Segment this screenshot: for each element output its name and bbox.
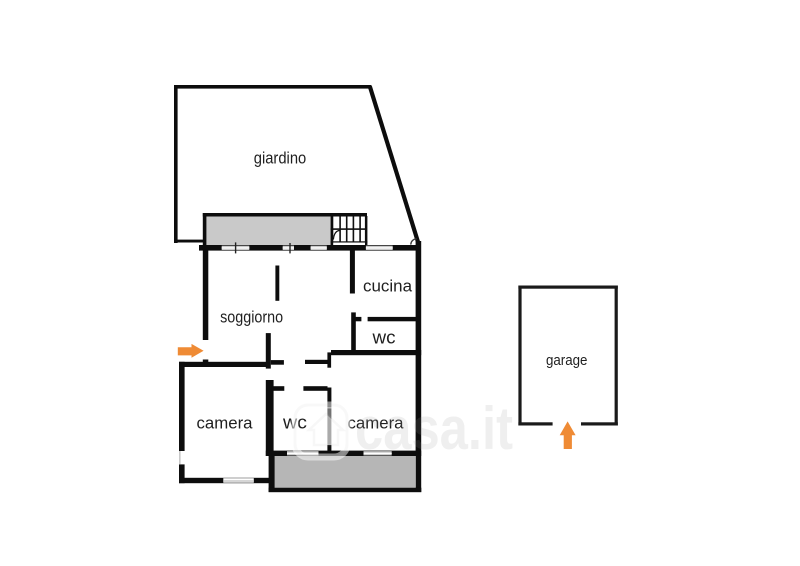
svg-text:casa.it: casa.it <box>355 395 513 462</box>
svg-text:giardino: giardino <box>254 149 307 168</box>
svg-text:soggiorno: soggiorno <box>220 308 283 327</box>
svg-text:cucina: cucina <box>363 277 413 296</box>
svg-text:garage: garage <box>546 353 588 369</box>
svg-text:camera: camera <box>197 414 254 433</box>
svg-text:wc: wc <box>371 328 395 348</box>
